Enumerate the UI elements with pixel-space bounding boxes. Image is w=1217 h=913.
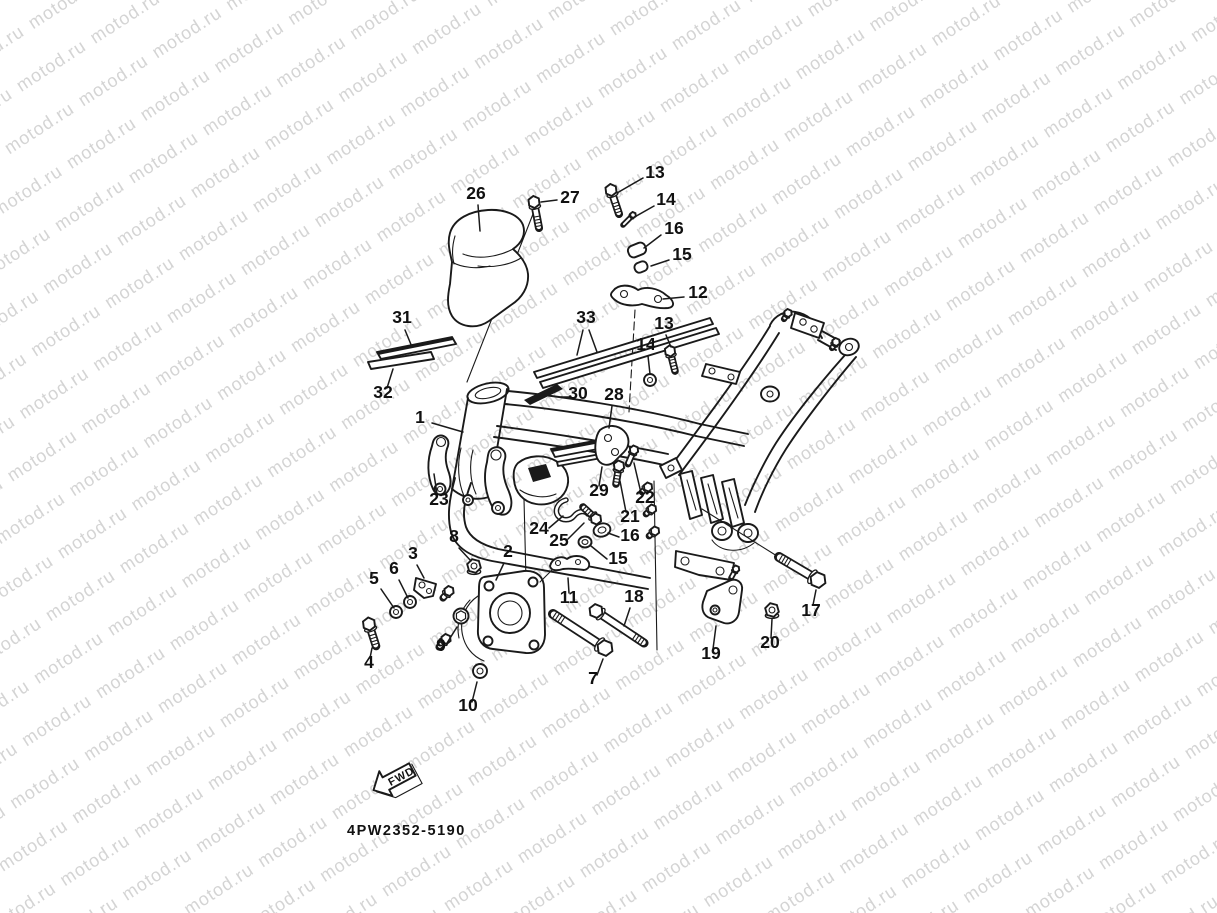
leader-line: [644, 235, 661, 248]
washer: [473, 664, 487, 678]
leader-line: [405, 330, 412, 347]
callout-15: 15: [608, 548, 628, 568]
callout-12: 12: [688, 282, 708, 302]
washer: [390, 606, 402, 618]
callout-32: 32: [373, 382, 393, 402]
part-33-strips: [534, 318, 719, 388]
callout-7: 7: [588, 668, 598, 688]
leader-line: [651, 260, 669, 266]
callout-31: 31: [392, 307, 412, 327]
bolt: [665, 346, 678, 372]
part-16-collar-top: [626, 241, 647, 259]
fwd-arrow: FWD: [367, 756, 422, 805]
bolt: [441, 586, 453, 599]
part-19-bracket: [702, 580, 742, 624]
callout-14: 14: [656, 189, 676, 209]
flange-nut: [467, 559, 481, 574]
leader-line: [399, 580, 408, 598]
callout-10: 10: [458, 695, 478, 715]
callout-23: 23: [429, 489, 449, 509]
leader-line: [417, 565, 424, 578]
callout-25: 25: [549, 530, 569, 550]
callout-4: 4: [364, 652, 374, 672]
callout-20: 20: [760, 632, 780, 652]
bolt: [363, 618, 379, 647]
callout-9: 9: [436, 635, 446, 655]
callout-30: 30: [568, 383, 588, 403]
washer: [404, 596, 416, 608]
leader-line: [589, 330, 597, 352]
callout-24: 24: [529, 518, 549, 538]
bolt: [830, 338, 840, 348]
callout-layer: 2627131416151231331314323028123292221242…: [364, 162, 821, 715]
leader-line: [609, 406, 612, 428]
bolt: [628, 446, 638, 465]
callout-15: 15: [672, 244, 692, 264]
bolt: [582, 506, 601, 525]
callout-16: 16: [620, 525, 640, 545]
leader-line: [624, 608, 630, 626]
callout-22: 22: [635, 487, 655, 507]
callout-21: 21: [620, 506, 640, 526]
part-3-bracket: [414, 578, 436, 598]
callout-17: 17: [801, 600, 820, 620]
part-15-collar-top: [633, 260, 649, 274]
callout-1: 1: [415, 407, 425, 427]
part-15-collar-mid: [579, 537, 592, 548]
callout-13: 13: [645, 162, 665, 182]
callout-8: 8: [449, 526, 459, 546]
callout-2: 2: [503, 541, 513, 561]
part-2-bracket: [458, 565, 557, 661]
bolt: [648, 527, 659, 538]
washer: [644, 374, 656, 386]
callout-6: 6: [389, 558, 399, 578]
callout-5: 5: [369, 568, 379, 588]
callout-14: 14: [636, 334, 656, 354]
parts-diagram-svg: 2627131416151231331314323028123292221242…: [0, 0, 1217, 913]
leader-line: [597, 659, 603, 675]
bolt: [529, 196, 543, 228]
callout-18: 18: [624, 586, 644, 606]
callout-11: 11: [560, 587, 579, 607]
leader-line: [541, 200, 557, 202]
bolt: [613, 461, 624, 485]
leader-line: [591, 546, 607, 559]
bolt: [606, 184, 623, 214]
callout-19: 19: [701, 643, 721, 663]
bolt: [731, 566, 739, 579]
bolt-head: [454, 609, 469, 624]
leader-line: [381, 589, 394, 608]
callout-27: 27: [560, 187, 579, 207]
callout-16: 16: [664, 218, 684, 238]
callout-26: 26: [466, 183, 486, 203]
callout-13: 13: [654, 313, 674, 333]
part-code: 4PW2352-5190: [347, 823, 466, 839]
part-26-cover: [448, 210, 533, 382]
bolt: [782, 309, 792, 319]
leader-line: [617, 178, 643, 193]
callout-28: 28: [604, 384, 624, 404]
callout-29: 29: [589, 480, 609, 500]
callout-33: 33: [576, 307, 596, 327]
flange-nut: [765, 603, 779, 618]
part-11-strip: [550, 556, 589, 570]
bolt: [623, 212, 636, 225]
leader-line: [648, 356, 650, 374]
part-28-bracket: [595, 426, 628, 465]
callout-3: 3: [408, 543, 418, 563]
leader-line: [577, 330, 583, 355]
leader-line: [432, 423, 463, 432]
part-12-bracket: [611, 286, 673, 309]
leader-line: [608, 533, 619, 537]
bolt: [778, 554, 825, 588]
parts-diagram-page: motod.rumotod.rumotod.rumotod.rumotod.ru…: [0, 0, 1217, 913]
